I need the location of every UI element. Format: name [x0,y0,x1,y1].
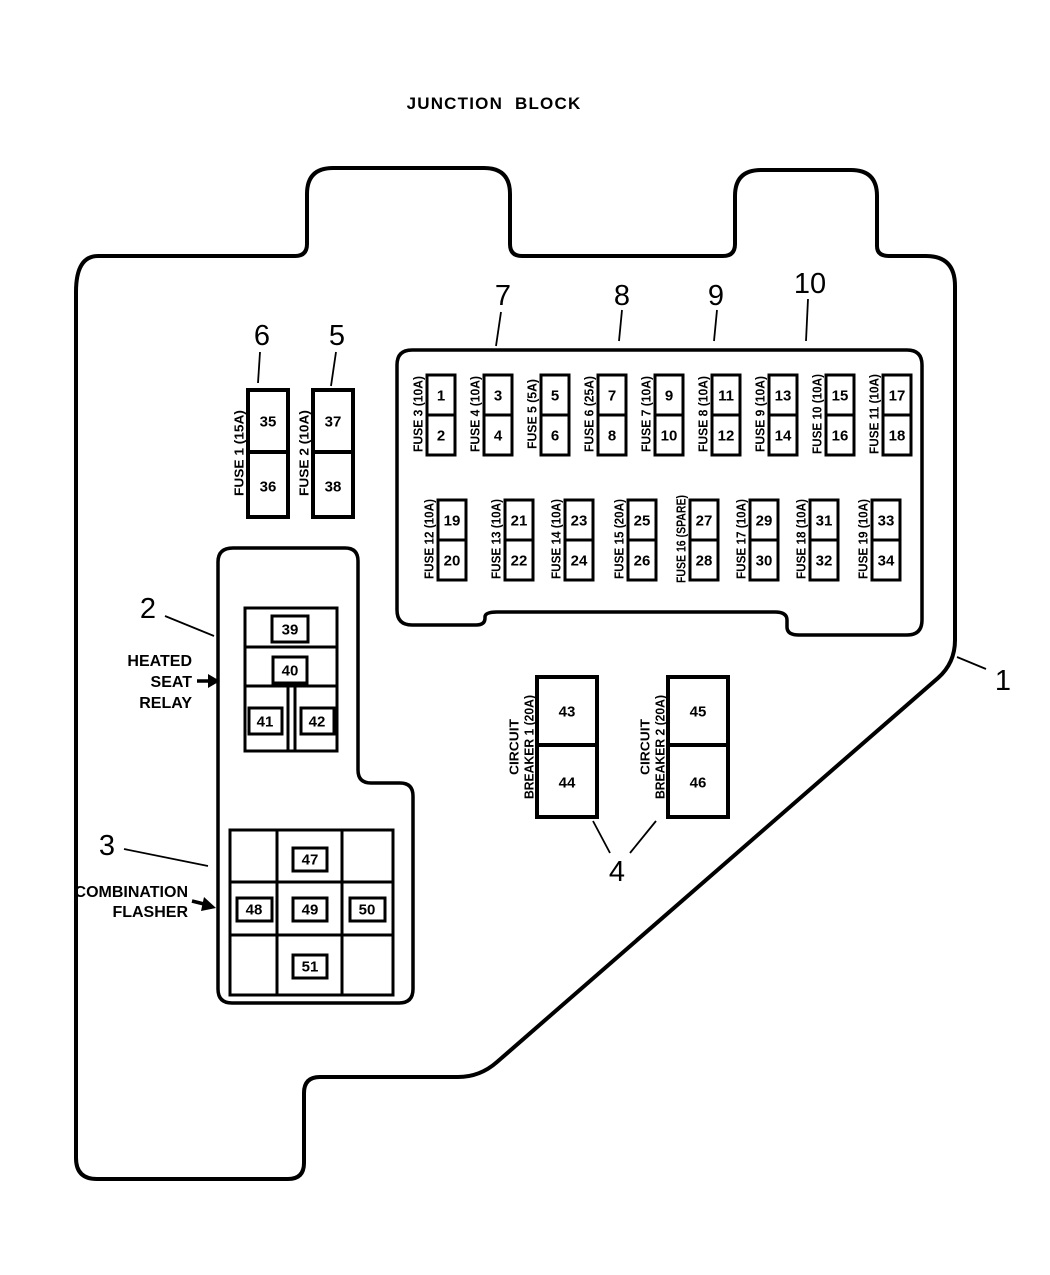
fuse-8-label: FUSE 8 (10A) [696,376,711,452]
breaker-cell-44: 44 [559,775,576,792]
callout-1: 1 [995,665,1011,697]
fuse-cell-8: 8 [608,428,616,445]
fuse-13-label: FUSE 13 (10A) [489,499,504,579]
fuse-unit-f12: FUSE 12 (10A) 19 20 [422,499,467,580]
fuse-cell-26: 26 [634,553,651,570]
fuse-unit-f8: FUSE 8 (10A) 11 12 [696,375,741,455]
fuse-unit-f4: FUSE 4 (10A) 3 4 [468,375,513,455]
fuse-unit-f14: FUSE 14 (10A) 23 24 [549,499,594,580]
fuse-cell-7: 7 [608,388,616,405]
fuse-cell-29: 29 [756,513,773,530]
fuse-unit-f13: FUSE 13 (10A) 21 22 [489,499,534,580]
fuse-unit-f15: FUSE 15 (20A) 25 26 [612,499,657,580]
fuse-cell-38: 38 [325,479,342,496]
fuse-cell-18: 18 [889,428,906,445]
flasher-arrow-icon [201,897,216,911]
fuse-unit-f7: FUSE 7 (10A) 9 10 [639,375,684,455]
fuse-cell-24: 24 [571,553,588,570]
fuse-cell-10: 10 [661,428,678,445]
fuse-unit-fuse1: FUSE 1 (15A) 35 36 [232,390,289,517]
fuse-6-label: FUSE 6 (25A) [582,376,597,452]
callout-5: 5 [329,320,345,352]
fuse-cell-25: 25 [634,513,651,530]
callout-4: 4 [609,856,625,888]
fuse-cell-5: 5 [551,388,559,405]
fuse-cell-14: 14 [775,428,792,445]
flasher-label-line2: FLASHER [112,904,188,921]
callout-6: 6 [254,320,270,352]
relay-cell-40: 40 [282,663,299,680]
fuse-unit-f18: FUSE 18 (10A) 31 32 [794,499,839,580]
fuse-cell-31: 31 [816,513,833,530]
fuse-11-label: FUSE 11 (10A) [867,374,882,454]
fuse-cell-22: 22 [511,553,528,570]
breaker-2-label-line2: BREAKER 2 (20A) [653,695,668,799]
fuse-cell-21: 21 [511,513,528,530]
breaker-1-label-line1: CIRCUIT [507,719,522,775]
fuse-unit-f19: FUSE 19 (10A) 33 34 [856,499,901,580]
relay-cell-41: 41 [257,714,274,731]
fuse-cell-15: 15 [832,388,849,405]
callout-7: 7 [495,280,511,312]
flasher-arrow-line [192,901,204,904]
fuse-15-label: FUSE 15 (20A) [612,499,627,579]
page-title: JUNCTION BLOCK [407,94,582,113]
circuit-breaker-2: CIRCUIT BREAKER 2 (20A) 45 46 [638,677,729,817]
junction-block-outline [76,168,955,1179]
breaker-cell-45: 45 [690,704,707,721]
relay-label-line3: RELAY [139,695,192,712]
fuse-unit-f11: FUSE 11 (10A) 17 18 [867,374,912,455]
fuse-cell-32: 32 [816,553,833,570]
fuse-unit-f10: FUSE 10 (10A) 15 16 [810,374,855,455]
fuse-cell-27: 27 [696,513,713,530]
fuse-unit-f3: FUSE 3 (10A) 1 2 [411,375,456,455]
fuse-cell-37: 37 [325,414,342,431]
fuse-12-label: FUSE 12 (10A) [422,499,437,579]
fuse-17-label: FUSE 17 (10A) [734,499,749,579]
fuse-cell-33: 33 [878,513,895,530]
fuse-cell-17: 17 [889,388,906,405]
fuse-unit-fuse2: FUSE 2 (10A) 37 38 [297,390,354,517]
fuse-cell-30: 30 [756,553,773,570]
callout-10: 10 [794,268,826,300]
fuse-cell-16: 16 [832,428,849,445]
fuse-unit-f6: FUSE 6 (25A) 7 8 [582,375,627,455]
fuse-3-label: FUSE 3 (10A) [411,376,426,452]
fuse-cell-6: 6 [551,428,559,445]
fuse-cell-28: 28 [696,553,713,570]
fuse-cell-2: 2 [437,428,445,445]
fuse-unit-f9: FUSE 9 (10A) 13 14 [753,375,798,455]
fuse-row-2: FUSE 12 (10A) 19 20 FUSE 13 (10A) 21 22 … [422,495,901,583]
fuse-unit-f5: FUSE 5 (5A) 5 6 [525,375,570,455]
fuse-cell-1: 1 [437,388,445,405]
combination-flasher-assembly: COMBINATION FLASHER 47 48 49 50 51 [75,830,393,995]
fuse-cell-13: 13 [775,388,792,405]
fuse-unit-f16: FUSE 16 (SPARE) 27 28 [674,495,719,583]
fuse-unit-f17: FUSE 17 (10A) 29 30 [734,499,779,580]
fuse-cell-12: 12 [718,428,735,445]
flasher-cell-49: 49 [302,902,319,919]
fuse-16-label: FUSE 16 (SPARE) [674,495,689,583]
callout-2: 2 [140,593,156,625]
relay-cell-39: 39 [282,622,299,639]
circuit-breaker-1: CIRCUIT BREAKER 1 (20A) 43 44 [507,677,598,817]
callout-8: 8 [614,280,630,312]
flasher-cell-50: 50 [359,902,376,919]
fuse-4-label: FUSE 4 (10A) [468,376,483,452]
fuse-cell-9: 9 [665,388,673,405]
fuse-1-label: FUSE 1 (15A) [232,410,247,496]
breaker-1-label-line2: BREAKER 1 (20A) [522,695,537,799]
fuse-2-label: FUSE 2 (10A) [297,410,312,496]
fuse-18-label: FUSE 18 (10A) [794,499,809,579]
fuse-cell-11: 11 [718,388,734,405]
flasher-cell-47: 47 [302,852,319,869]
fuse-cell-35: 35 [260,414,277,431]
fuse-cell-19: 19 [444,513,461,530]
fuse-row-1: FUSE 3 (10A) 1 2 FUSE 4 (10A) 3 4 FUSE 5… [411,374,912,455]
breaker-2-label-line1: CIRCUIT [638,719,653,775]
flasher-cell-51: 51 [302,959,319,976]
breaker-cell-43: 43 [559,704,576,721]
callout-3: 3 [99,830,115,862]
fuse-5-label: FUSE 5 (5A) [525,379,540,449]
fuse-cell-4: 4 [494,428,503,445]
fuse-cell-3: 3 [494,388,502,405]
fuse-cell-36: 36 [260,479,277,496]
junction-block-diagram: JUNCTION BLOCK 1 2 3 4 5 6 7 8 9 10 FUSE… [0,0,1050,1275]
relay-label-line2: SEAT [151,674,193,691]
flasher-cell-48: 48 [246,902,263,919]
fuse-9-label: FUSE 9 (10A) [753,376,768,452]
heated-seat-relay-assembly: HEATED SEAT RELAY 39 40 41 42 [127,608,337,751]
fuse-cell-20: 20 [444,553,461,570]
fuse-cell-34: 34 [878,553,895,570]
fuse-7-label: FUSE 7 (10A) [639,376,654,452]
fuse-cell-23: 23 [571,513,588,530]
fuse-10-label: FUSE 10 (10A) [810,374,825,454]
relay-label-line1: HEATED [127,653,192,670]
breaker-cell-46: 46 [690,775,707,792]
relay-cell-42: 42 [309,714,326,731]
flasher-label-line1: COMBINATION [75,884,188,901]
fuse-14-label: FUSE 14 (10A) [549,499,564,579]
callout-9: 9 [708,280,724,312]
fuse-19-label: FUSE 19 (10A) [856,499,871,579]
